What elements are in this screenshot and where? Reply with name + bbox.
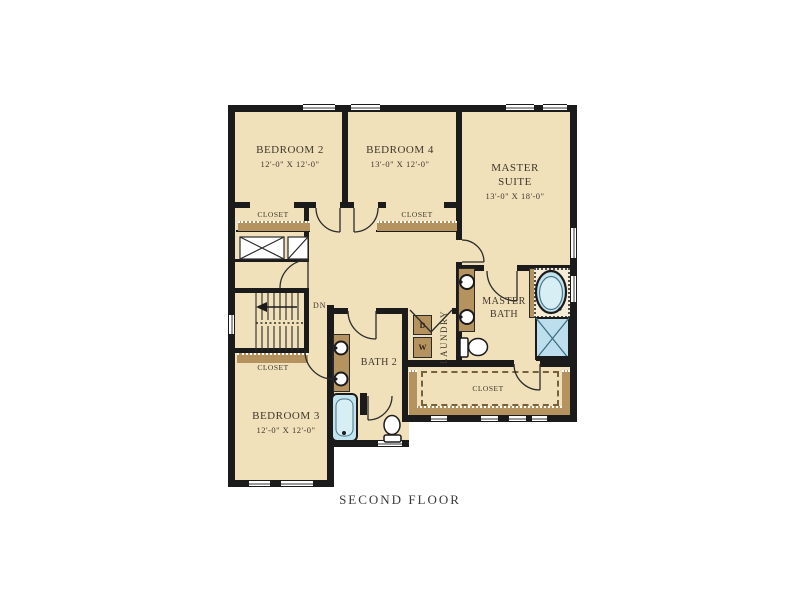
door-arc-stair-landing bbox=[280, 260, 308, 288]
master-tub-faucet bbox=[558, 307, 561, 310]
master-bath-label: MASTER BATH bbox=[466, 296, 542, 321]
stair-treads-lower bbox=[262, 326, 298, 351]
bedroom4-dims: 13'-0" X 12'-0" bbox=[340, 159, 460, 170]
bedroom2-closet-label: CLOSET bbox=[234, 210, 312, 219]
bedroom2-dims: 12'-0" X 12'-0" bbox=[230, 159, 350, 170]
bedroom3-closet-label: CLOSET bbox=[234, 363, 312, 372]
master-toilet-bowl bbox=[469, 339, 488, 356]
master-suite-dims: 13'-0" X 18'-0" bbox=[456, 191, 574, 202]
bedroom3-dims: 12'-0" X 12'-0" bbox=[226, 425, 346, 436]
bath2-toilet-tank bbox=[384, 435, 401, 442]
stair-dn-label: DN bbox=[313, 301, 337, 311]
plan-title: SECOND FLOOR bbox=[290, 492, 510, 508]
laundry-label: LAUNDRY bbox=[434, 311, 454, 363]
master-suite-name-1: MASTER bbox=[456, 162, 574, 176]
master-suite-name-2: SUITE bbox=[456, 176, 574, 190]
bath2-sink-2-faucet bbox=[335, 378, 338, 381]
plan-linework bbox=[0, 0, 800, 600]
bedroom3-label: BEDROOM 3 12'-0" X 12'-0" bbox=[226, 410, 346, 435]
master-toilet-tank bbox=[460, 338, 468, 357]
door-arc-master-entry bbox=[462, 240, 484, 262]
floor-plan-page: D W bbox=[0, 0, 800, 600]
bedroom3-name: BEDROOM 3 bbox=[226, 410, 346, 424]
master-shower-curb bbox=[536, 356, 569, 361]
bedroom2-name: BEDROOM 2 bbox=[230, 144, 350, 158]
master-tub-inner bbox=[540, 277, 563, 310]
master-bath-name-1: MASTER bbox=[466, 296, 542, 309]
bath2-label: BATH 2 bbox=[339, 357, 419, 370]
master-bath-name-2: BATH bbox=[466, 309, 542, 322]
master-sink-2-faucet bbox=[459, 315, 462, 318]
master-sink-1-faucet bbox=[459, 280, 462, 283]
door-arc-bedroom2 bbox=[316, 208, 340, 232]
walkin-closet-label: CLOSET bbox=[428, 384, 548, 393]
bath2-sink-1-faucet bbox=[335, 347, 338, 350]
bedroom4-name: BEDROOM 4 bbox=[340, 144, 460, 158]
bedroom4-closet-label: CLOSET bbox=[377, 210, 457, 219]
bedroom2-label: BEDROOM 2 12'-0" X 12'-0" bbox=[230, 144, 350, 169]
bath2-toilet-bowl bbox=[384, 416, 400, 435]
bedroom4-label: BEDROOM 4 13'-0" X 12'-0" bbox=[340, 144, 460, 169]
master-suite-label: MASTER SUITE 13'-0" X 18'-0" bbox=[456, 162, 574, 201]
door-arc-bedroom4 bbox=[354, 208, 378, 232]
door-arc-bath2 bbox=[348, 311, 376, 339]
